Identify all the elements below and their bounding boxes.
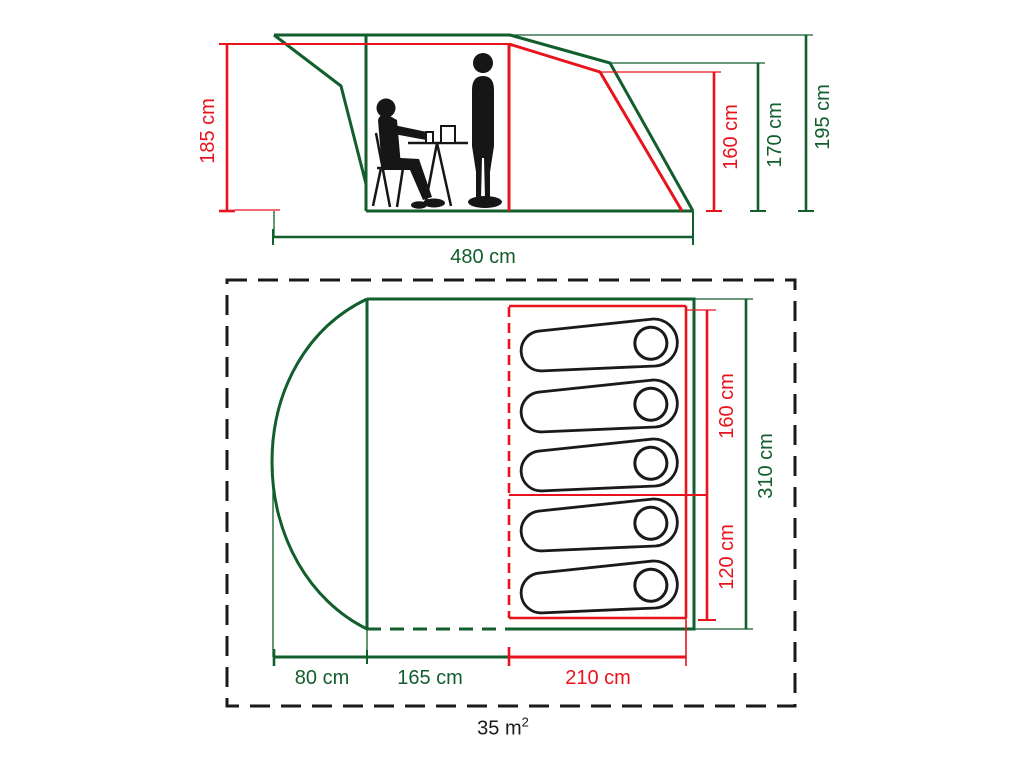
tent-dimensions-diagram: 185 cm 160 cm 170 cm 195 cm 480 cm 160 c… [0, 0, 1024, 768]
total-width-label: 310 cm [756, 433, 776, 499]
carton-icon [441, 126, 455, 143]
rear-height-label: 170 cm [765, 102, 785, 168]
dimension-170 [610, 63, 766, 211]
sleeping-bag-icon [520, 378, 679, 436]
diagram-canvas [0, 0, 1024, 768]
canopy-depth-label: 80 cm [295, 668, 349, 688]
awning-height-label: 185 cm [198, 98, 218, 164]
total-length-label: 480 cm [450, 247, 516, 267]
living-depth-label: 165 cm [397, 668, 463, 688]
sleeping-bag-icon [520, 437, 679, 495]
sleeping-bags [520, 317, 679, 617]
floor-plan-diagram [227, 280, 795, 706]
standing-person-figure [468, 53, 502, 208]
dimension-185 [219, 44, 509, 211]
sleeping-bag-icon [520, 497, 679, 555]
peak-height-label: 195 cm [813, 84, 833, 150]
sleeping-bag-icon [520, 559, 679, 617]
sleeping-bag-icon [520, 317, 679, 375]
sleeping-large-width-label: 160 cm [717, 373, 737, 439]
cup-icon [426, 132, 433, 143]
inner-cabin-outline [509, 44, 682, 211]
cabin-height-label: 160 cm [721, 104, 741, 170]
dimension-160-120 [686, 310, 716, 666]
dimension-480 [273, 211, 693, 245]
sleeping-small-width-label: 120 cm [717, 524, 737, 590]
dimension-160-side [600, 72, 722, 211]
total-area-label: 35 m2 [477, 716, 529, 739]
total-area-exponent: 2 [522, 715, 529, 730]
total-area-value: 35 m [477, 717, 521, 739]
sleeping-depth-label: 210 cm [565, 668, 631, 688]
